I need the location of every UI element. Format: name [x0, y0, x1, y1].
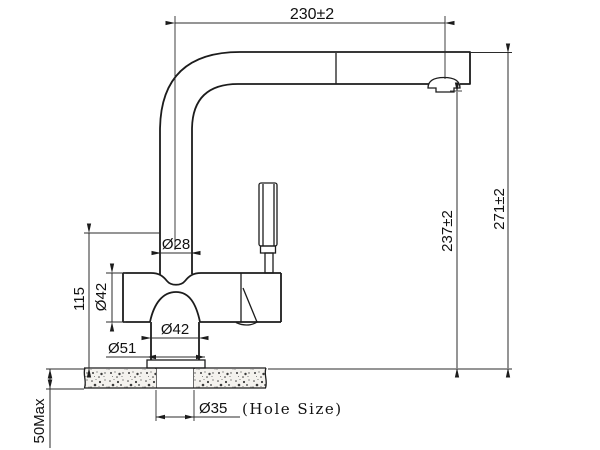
spout-nozzle: [428, 78, 460, 93]
mounting-shank: [156, 368, 194, 388]
dim-outlet-height: 237±2: [439, 91, 462, 368]
dim-spout-reach-label: 230±2: [290, 6, 334, 23]
dim-overall-height-label: 271±2: [491, 188, 508, 230]
dim-flange-diameter-label: Ø51: [108, 340, 136, 357]
dim-column-diameter-label: Ø28: [162, 236, 190, 253]
faucet-technical-drawing: 230±2 271±2 237±2 115 Ø28: [0, 0, 600, 450]
dim-column-diameter: Ø28: [161, 236, 191, 253]
mounting-flange: [147, 360, 205, 368]
handle-lever: [259, 183, 277, 273]
dim-body-diameter: Ø42: [93, 273, 126, 322]
thickness-arrow-down: [48, 380, 53, 390]
countertop-section: [84, 368, 266, 388]
sprayhead-angled-edge: [243, 288, 257, 322]
dim-counter-thickness: 50Max: [31, 369, 84, 448]
handle-collar: [261, 246, 276, 253]
counter-stipple-left: [85, 369, 156, 388]
dim-body-height-label: 115: [71, 287, 88, 311]
dim-overall-height: 271±2: [268, 53, 512, 370]
dim-body-diameter-label: Ø42: [93, 283, 110, 311]
dim-base-diameter-label: Ø42: [161, 321, 189, 338]
dim-hole-diameter-label: Ø35: [199, 400, 227, 417]
dim-hole-diameter: Ø35 (Hole Size): [156, 390, 343, 421]
thickness-arrow-up: [48, 369, 53, 379]
dim-outlet-height-label: 237±2: [439, 210, 456, 252]
base-cone-silhouette: [150, 292, 200, 322]
dim-counter-thickness-label: 50Max: [31, 398, 48, 444]
dim-base-diameter: Ø42: [151, 321, 199, 338]
flange-arrow-right: [196, 355, 205, 360]
dim-flange-diameter: Ø51: [106, 340, 205, 359]
handle-stem: [265, 253, 273, 273]
spout-outer-profile: [160, 52, 470, 275]
hole-arrow-right: [185, 415, 194, 420]
counter-stipple-right: [194, 369, 266, 388]
hole-size-note-label: (Hole Size): [242, 400, 343, 418]
dim-spout-reach: 230±2: [175, 6, 445, 250]
valve-body: [123, 273, 281, 325]
body-top-edge: [123, 273, 281, 285]
handle-grip-facets: [263, 184, 274, 246]
spout-inner-profile: [192, 84, 429, 274]
hole-arrow-left: [156, 415, 165, 420]
